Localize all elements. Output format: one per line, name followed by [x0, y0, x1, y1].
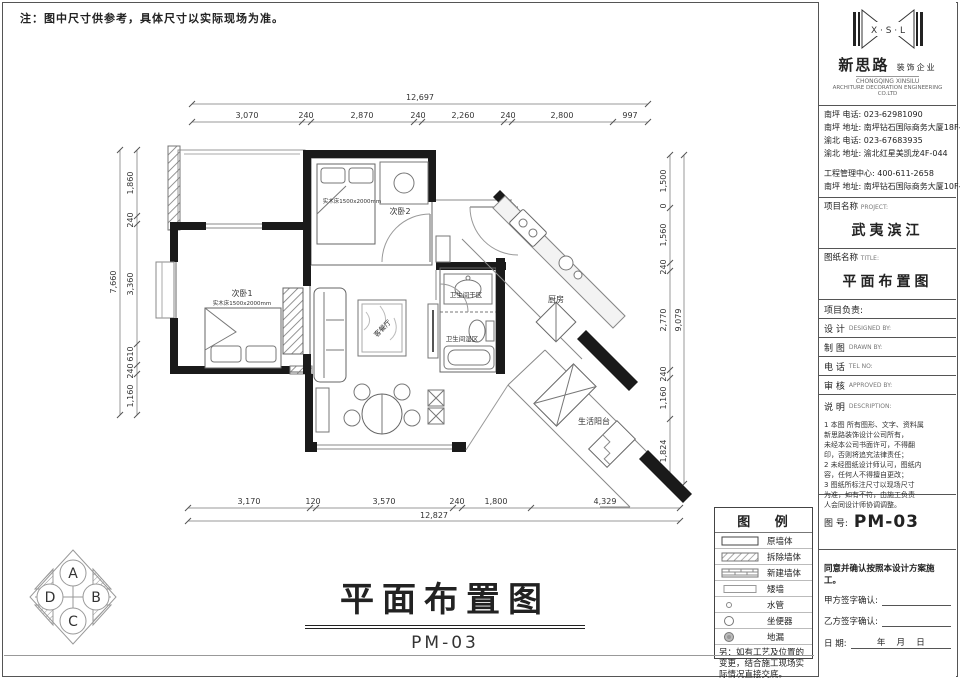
figure-number-box: 图 号: PM-03	[819, 495, 956, 550]
label-living: 客餐厅	[372, 318, 393, 339]
contact-line: 工程管理中心: 400-611-2658	[824, 167, 951, 180]
svg-text:7,660: 7,660	[109, 271, 118, 294]
label-bedroom1: 次卧1	[231, 288, 252, 298]
svg-text:X · S · L: X · S · L	[870, 26, 904, 36]
legend-item-toilet: 坐便器	[715, 613, 812, 629]
contact-line: 渝北 电话: 023-67683935	[824, 134, 951, 147]
contact-line: 渝北 地址: 渝北红星美凯龙4F-044	[824, 147, 951, 160]
sheet-label: 图纸名称	[824, 253, 858, 263]
label-bath-dry: 卫生间干区	[450, 290, 483, 299]
compass-d: D	[45, 590, 56, 606]
svg-text:4,329: 4,329	[594, 497, 617, 506]
label-balcony: 生活阳台	[578, 416, 610, 426]
legend: 图 例 原墙体 拆除墙体 新建墙体 矮墙 水管 坐便器 地漏 另：如有工艺及位置…	[714, 507, 813, 659]
svg-text:240: 240	[659, 259, 668, 274]
description-box: 说 明DESCRIPTION: 1 本图 所有图形、文字、资料属 新思路装饰设计…	[819, 395, 956, 495]
svg-text:240: 240	[500, 111, 515, 120]
svg-text:240: 240	[410, 111, 425, 120]
brand-name-en1: CHONGQING XINSILU	[856, 76, 919, 85]
sign-line-party-b: 乙方签字确认:	[824, 615, 951, 627]
brand-name-en2: ARCHITURE DECORATION ENGINEERING CO.LTD	[824, 85, 951, 97]
legend-item-floor-drain: 地漏	[715, 629, 812, 645]
dimension-chain-bottom: 3,170 120 3,570 240 1,800 4,329 12,827	[185, 497, 683, 524]
contact-line: 南坪 地址: 南坪钻石国际商务大厦18F-3	[824, 121, 951, 134]
figure-number-label: 图 号:	[824, 516, 848, 529]
legend-item-new-wall: 新建墙体	[715, 565, 812, 581]
svg-text:2,870: 2,870	[351, 111, 374, 120]
svg-text:1,160: 1,160	[659, 387, 668, 410]
svg-text:12,827: 12,827	[420, 511, 448, 520]
dimension-chain-top: 12,697 3,070 240 2,870 240 2,260 240 2,8…	[189, 93, 651, 125]
original-wall-swatch	[719, 536, 761, 546]
svg-text:240: 240	[126, 363, 135, 378]
svg-text:3,170: 3,170	[238, 497, 261, 506]
svg-text:3,070: 3,070	[236, 111, 259, 120]
description-line: 新思路装饰设计公司所有，	[824, 430, 951, 440]
svg-text:3,360: 3,360	[126, 273, 135, 296]
low-wall-swatch	[719, 584, 761, 594]
date-value[interactable]: 年 月 日	[851, 636, 951, 649]
signature-field-b[interactable]	[882, 616, 951, 627]
legend-title: 图 例	[715, 508, 812, 533]
sign-line-party-a: 甲方签字确认:	[824, 594, 951, 606]
legend-item-water-pipe: 水管	[715, 597, 812, 613]
svg-text:1,560: 1,560	[659, 224, 668, 247]
description-line: 2 未经图纸设计师认可，图纸内	[824, 460, 951, 470]
figure-number: PM-03	[854, 512, 919, 532]
dimension-chain-left: 7,660 1,860 240 3,360 610 240 1,160	[109, 147, 140, 418]
svg-text:9,079: 9,079	[674, 309, 683, 332]
legend-item-low-wall: 矮墙	[715, 581, 812, 597]
description-label-en: DESCRIPTION:	[849, 403, 892, 410]
svg-text:120: 120	[305, 497, 320, 506]
label-kitchen: 厨房	[548, 294, 564, 304]
label-bedroom1-note: 实木床1500x2000mm	[213, 299, 271, 307]
description-line: 印，否则将追究法律责任；	[824, 450, 951, 460]
toilet-swatch	[719, 615, 761, 627]
drawing-title-block: 平面布置图 PM-03	[305, 572, 585, 653]
date-line: 日 期: 年 月 日	[824, 636, 951, 649]
description-line: 3 图纸所标注尺寸以现场尺寸	[824, 480, 951, 490]
svg-text:240: 240	[126, 212, 135, 227]
sheet-name: 平面布置图	[824, 271, 951, 291]
svg-text:2,800: 2,800	[551, 111, 574, 120]
date-label: 日 期:	[824, 637, 847, 649]
label-bedroom2-note: 实木床1500x2000mm	[323, 197, 381, 205]
brand-name-cn: 新思路 装饰企业	[824, 54, 951, 75]
svg-text:1,160: 1,160	[126, 385, 135, 408]
description-line: 1 本图 所有图形、文字、资料属	[824, 420, 951, 430]
svg-text:240: 240	[659, 366, 668, 381]
compass-a: A	[68, 566, 78, 582]
company-logo-icon: X · S · L	[852, 8, 924, 50]
water-pipe-swatch	[719, 600, 761, 610]
description-line: 容，任何人不得擅自更改；	[824, 470, 951, 480]
legend-note: 另：如有工艺及位置的变更，结合施工现场实际情况直接交底。	[715, 645, 812, 684]
svg-text:12,697: 12,697	[406, 93, 434, 102]
new-wall-swatch	[719, 568, 761, 578]
demolished-wall-swatch	[719, 552, 761, 562]
drawing-sheet: { "sheet": { "note": "注：图中尺寸供参考，具体尺寸以实际现…	[0, 0, 960, 679]
project-name: 武夷滨江	[824, 220, 951, 240]
title-block: X · S · L 新思路 装饰企业 CHONGQING XINSILU ARC…	[818, 2, 956, 677]
compass-c: C	[68, 614, 78, 630]
svg-text:240: 240	[449, 497, 464, 506]
project-label-en: PROJECT:	[861, 204, 888, 211]
svg-text:1,860: 1,860	[126, 172, 135, 195]
label-bedroom2: 次卧2	[389, 206, 410, 216]
project-label: 项目名称	[824, 202, 858, 212]
svg-text:2,260: 2,260	[452, 111, 475, 120]
svg-text:997: 997	[622, 111, 637, 120]
field-drawn-by: 制 图DRAWN BY:	[819, 338, 956, 357]
svg-text:1,824: 1,824	[659, 440, 668, 463]
svg-text:0: 0	[659, 203, 668, 208]
confirmation-text: 同意并确认按照本设计方案施工。	[824, 562, 951, 586]
legend-item-demolished-wall: 拆除墙体	[715, 549, 812, 565]
field-approved-by: 审 核APPROVED BY:	[819, 376, 956, 395]
svg-text:2,770: 2,770	[659, 309, 668, 332]
sheet-name-box: 图纸名称 TITLE: 平面布置图	[819, 249, 956, 300]
drawing-title: 平面布置图	[305, 572, 585, 629]
svg-text:1,800: 1,800	[485, 497, 508, 506]
sheet-label-en: TITLE:	[861, 255, 879, 262]
project-name-box: 项目名称 PROJECT: 武夷滨江	[819, 198, 956, 249]
field-tel: 电 话TEL NO:	[819, 357, 956, 376]
drawing-code: PM-03	[305, 633, 585, 653]
legend-item-original-wall: 原墙体	[715, 533, 812, 549]
compass-b: B	[91, 590, 101, 606]
description-label: 说 明	[824, 400, 845, 413]
company-logo-box: X · S · L 新思路 装饰企业 CHONGQING XINSILU ARC…	[819, 2, 956, 106]
field-designed-by: 设 计DESIGNED BY:	[819, 319, 956, 338]
company-contacts: 南坪 电话: 023-62981090 南坪 地址: 南坪钻石国际商务大厦18F…	[819, 106, 956, 198]
svg-text:3,570: 3,570	[373, 497, 396, 506]
signature-box: 同意并确认按照本设计方案施工。 甲方签字确认: 乙方签字确认: 日 期: 年 月…	[819, 550, 956, 658]
signature-field-a[interactable]	[882, 595, 951, 606]
svg-text:1,500: 1,500	[659, 170, 668, 193]
label-bath-wet: 卫生间湿区	[446, 334, 479, 343]
svg-text:610: 610	[126, 346, 135, 361]
bottom-rule	[4, 655, 814, 656]
orientation-compass: A B C D	[26, 546, 120, 648]
floor-drain-swatch	[719, 631, 761, 643]
field-project-lead: 项目负责:	[819, 300, 956, 319]
contact-line: 南坪 电话: 023-62981090	[824, 108, 951, 121]
description-line: 未经本公司书面许可，不得翻	[824, 440, 951, 450]
contact-line: 南坪 地址: 南坪钻石国际商务大厦10F-1	[824, 180, 951, 193]
svg-text:240: 240	[298, 111, 313, 120]
dimension-chain-right: 1,500 0 1,560 240 2,770 240 1,160 1,824 …	[659, 152, 687, 487]
plan-furniture	[205, 162, 635, 467]
